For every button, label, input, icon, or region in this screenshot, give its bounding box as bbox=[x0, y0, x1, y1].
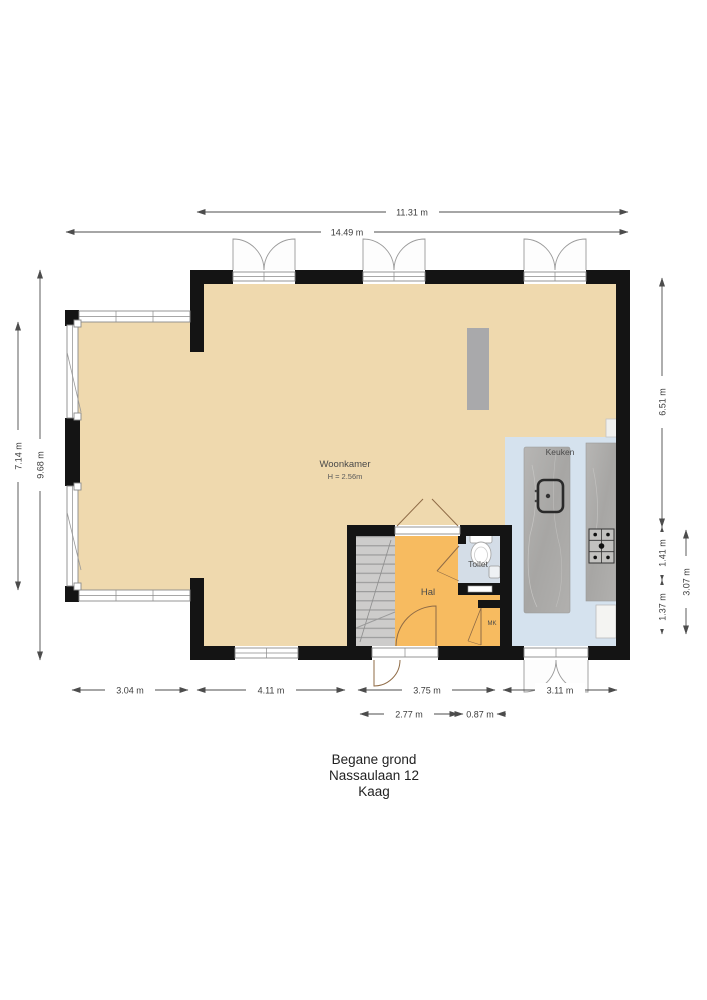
keuken-label: Keuken bbox=[546, 447, 575, 457]
toilet-vent-window bbox=[468, 586, 492, 592]
dim-top-outer: 14.49 m bbox=[66, 225, 628, 238]
dim-bottom-toilet: 0.87 m bbox=[454, 710, 506, 720]
svg-text:7.14 m: 7.14 m bbox=[14, 442, 24, 470]
svg-text:3.11 m: 3.11 m bbox=[547, 686, 574, 696]
title-line-1: Begane grond bbox=[332, 752, 417, 767]
svg-text:3.75 m: 3.75 m bbox=[413, 686, 441, 696]
svg-text:3.07 m: 3.07 m bbox=[682, 568, 692, 596]
title-line-2: Nassaulaan 12 bbox=[329, 768, 419, 783]
cooktop bbox=[589, 529, 614, 563]
wall-mk-top bbox=[478, 600, 502, 608]
svg-text:9.68 m: 9.68 m bbox=[36, 451, 46, 479]
svg-text:6.51 m: 6.51 m bbox=[658, 388, 668, 416]
sink-tap-dot2 bbox=[535, 500, 538, 503]
dim-bottom-bay: 3.04 m bbox=[72, 683, 188, 696]
svg-text:2.77 m: 2.77 m bbox=[395, 710, 423, 720]
svg-text:11.31 m: 11.31 m bbox=[396, 208, 428, 218]
dim-bottom-woonkamer: 4.11 m bbox=[197, 683, 345, 696]
dim-left-outer: 9.68 m bbox=[33, 270, 47, 660]
dim-right-lower: 1.37 m bbox=[655, 580, 669, 634]
dim-right-mid: 1.41 m bbox=[655, 527, 669, 580]
french-door-top-1 bbox=[233, 239, 295, 284]
dim-bottom-keuken: 3.11 m bbox=[503, 683, 617, 696]
floor-plan-drawing: 11.31 m 14.49 m 7.14 m 9.68 m 6.51 m 1.4 bbox=[0, 0, 707, 1000]
wall-bay-mid bbox=[65, 418, 80, 486]
toilet-label: Toilet bbox=[468, 559, 488, 569]
kitchen-appliance bbox=[596, 605, 616, 638]
mk-label: MK bbox=[488, 621, 497, 627]
plan-title: Begane grond Nassaulaan 12 Kaag bbox=[329, 752, 419, 799]
wall-right bbox=[616, 270, 630, 660]
hal-label: Hal bbox=[421, 587, 435, 598]
svg-text:0.87 m: 0.87 m bbox=[466, 710, 494, 720]
chimney-column bbox=[467, 328, 489, 410]
sink-drain bbox=[546, 494, 550, 498]
dim-top-inner: 11.31 m bbox=[197, 205, 628, 218]
wall-step-bottom bbox=[190, 578, 204, 660]
dim-right-upper: 6.51 m bbox=[655, 278, 669, 527]
french-door-top-3 bbox=[524, 239, 586, 284]
svg-text:1.37 m: 1.37 m bbox=[658, 593, 668, 621]
svg-text:1.41 m: 1.41 m bbox=[658, 539, 668, 567]
svg-text:3.04 m: 3.04 m bbox=[116, 686, 144, 696]
dim-bottom-hal-inner: 2.77 m bbox=[360, 707, 458, 720]
dim-bottom-hal: 3.75 m bbox=[358, 683, 495, 696]
wall-step-top bbox=[190, 270, 204, 352]
woonkamer-height-note: H = 2.56m bbox=[328, 472, 363, 481]
wall-stairs-left bbox=[347, 525, 356, 646]
dim-right-outer: 3.07 m bbox=[679, 530, 693, 634]
floor-plan-page: 11.31 m 14.49 m 7.14 m 9.68 m 6.51 m 1.4 bbox=[0, 0, 707, 1000]
title-line-3: Kaag bbox=[358, 784, 390, 799]
svg-text:4.11 m: 4.11 m bbox=[258, 686, 285, 696]
dim-left-inner: 7.14 m bbox=[11, 322, 25, 590]
kitchen-counter bbox=[586, 443, 616, 601]
sink-tap-dot1 bbox=[535, 490, 538, 493]
svg-text:14.49 m: 14.49 m bbox=[331, 228, 364, 238]
french-door-top-2 bbox=[363, 239, 425, 284]
window-bottom bbox=[235, 646, 298, 660]
woonkamer-label: Woonkamer bbox=[319, 459, 370, 470]
toilet-sink bbox=[489, 566, 500, 578]
